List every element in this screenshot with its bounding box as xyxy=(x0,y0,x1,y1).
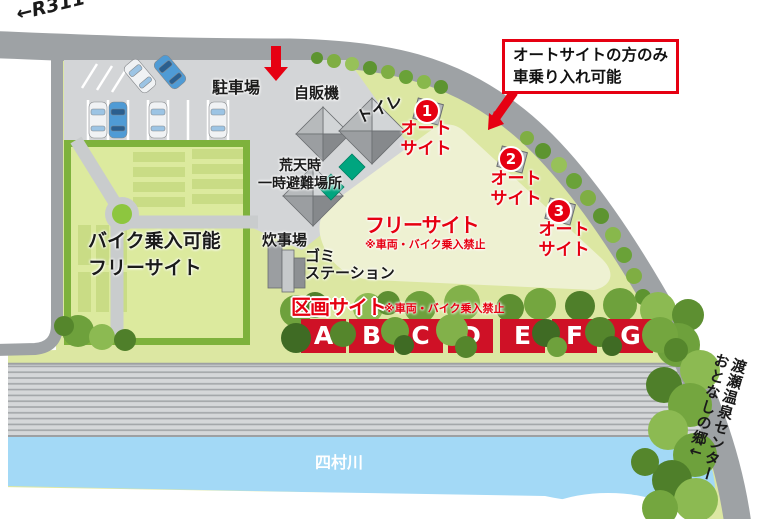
vending-building xyxy=(296,107,350,161)
bike-free-site-label-line2: フリーサイト xyxy=(88,255,221,282)
direction-sign: 渡瀬温泉センター おとなしの郷↓ xyxy=(669,351,749,519)
route-label: ←R311 xyxy=(14,0,87,25)
plot-c: C xyxy=(398,319,443,353)
auto-site-2-label-line2: サイト xyxy=(480,190,552,210)
storm-shelter-label-line2: 一時避難場所 xyxy=(250,175,350,193)
vending-machine-label: 自販機 xyxy=(294,82,339,103)
plot-g: G xyxy=(608,319,653,353)
plot-e: E xyxy=(500,319,545,353)
river-sandbar xyxy=(528,493,688,519)
parking-label: 駐車場 xyxy=(212,74,260,98)
auto-site-3-label-line1: オート xyxy=(528,221,600,241)
garbage-station-label-line2: ステーション xyxy=(305,265,395,282)
left-road xyxy=(0,50,57,350)
auto-site-3-label: オート サイト xyxy=(528,221,600,260)
auto-site-notice-box: オートサイトの方のみ 車乗り入れ可能 xyxy=(502,39,679,94)
auto-site-2-label: オート サイト xyxy=(480,170,552,209)
auto-site-notice-line1: オートサイトの方のみ xyxy=(513,44,668,66)
parking-lines xyxy=(82,64,228,140)
free-site-label: フリーサイト xyxy=(365,209,479,238)
river-embankment xyxy=(8,363,713,437)
autosite-guide-arrow-icon xyxy=(488,92,514,130)
storm-shelter-label: 荒天時 一時避難場所 xyxy=(250,157,350,193)
plot-f: F xyxy=(552,319,597,353)
river-bank xyxy=(0,487,708,519)
auto-site-1-label: オート サイト xyxy=(390,120,462,159)
section-site-note: ※車両・バイク乗入禁止 xyxy=(384,300,504,316)
entrance-arrow-icon xyxy=(264,46,288,81)
campground-ground xyxy=(8,56,730,519)
auto-site-3-label-line2: サイト xyxy=(528,241,600,261)
auto-site-1-label-line2: サイト xyxy=(390,140,462,160)
bike-free-site-label-line1: バイク乗入可能 xyxy=(88,228,221,255)
storm-shelter-label-line1: 荒天時 xyxy=(250,157,350,175)
auto-site-2-label-line1: オート xyxy=(480,170,552,190)
plot-d: D xyxy=(448,319,493,353)
garbage-station-label: ゴミ ステーション xyxy=(305,248,395,283)
river-label: 四村川 xyxy=(315,449,363,473)
plot-a: A xyxy=(301,319,346,353)
auto-site-notice-line2: 車乗り入れ可能 xyxy=(513,66,668,88)
section-site-label: 区画サイト xyxy=(291,291,386,320)
parked-cars xyxy=(89,53,227,138)
campground-map: A B C D E F G ←R311 駐車場 自販機 トイレ 荒天時 一時避難… xyxy=(0,0,780,519)
bike-free-site-label: バイク乗入可能 フリーサイト xyxy=(88,228,221,281)
kitchen-label: 炊事場 xyxy=(262,229,307,250)
plot-b: B xyxy=(349,319,394,353)
free-site-note: ※車両・バイク乗入禁止 xyxy=(365,236,485,252)
auto-site-1-label-line1: オート xyxy=(390,120,462,140)
